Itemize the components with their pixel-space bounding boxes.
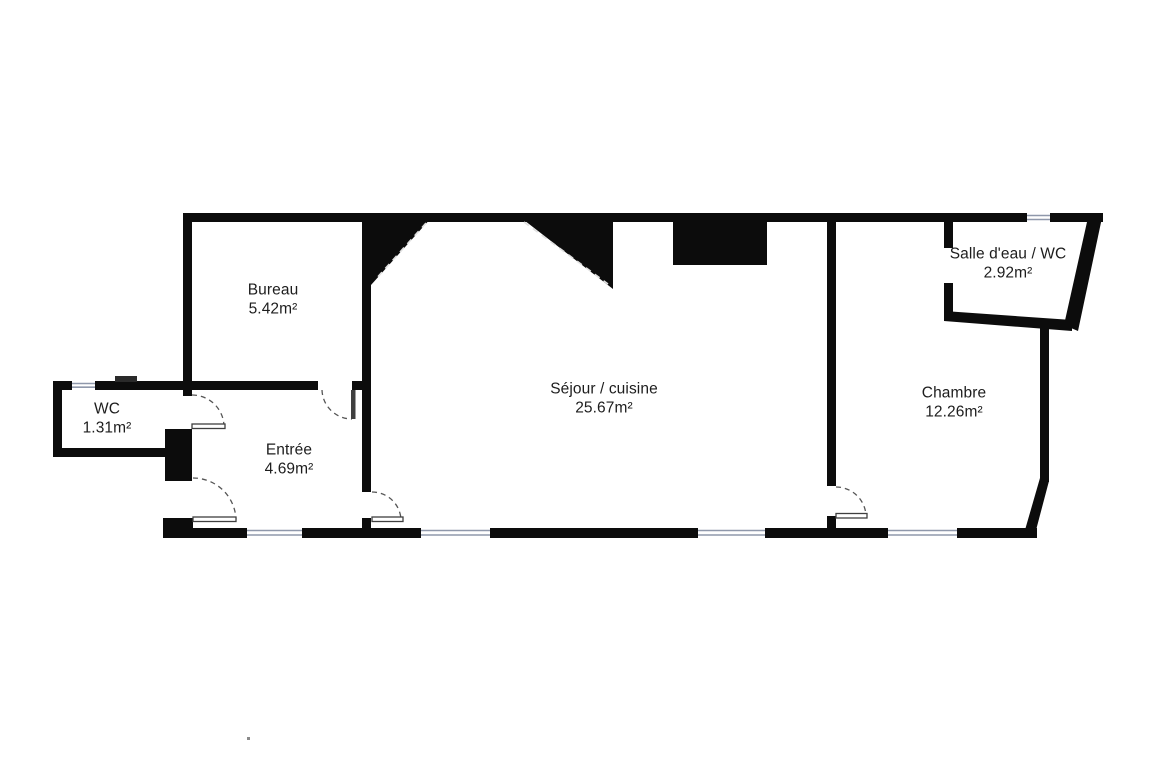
door-arc-chambre — [836, 487, 866, 516]
room-name: WC — [83, 401, 132, 420]
wall-chambre-right — [1040, 322, 1049, 482]
room-label-salle-deau: Salle d'eau / WC 2.92m² — [950, 246, 1067, 283]
wall-wc-bottom — [53, 448, 172, 457]
wall-wc-top-b — [95, 381, 192, 390]
wall-sejour-stub — [362, 518, 371, 538]
room-name: Séjour / cuisine — [550, 381, 658, 400]
wall-bureau-entree-right — [362, 213, 371, 492]
wall-wc-fixture — [115, 376, 137, 382]
room-label-entree: Entrée 4.69m² — [265, 442, 314, 479]
wall-bureau-bottom-a — [183, 381, 318, 390]
room-area: 25.67m² — [550, 399, 658, 418]
door-arc-bureau — [322, 390, 352, 419]
room-name: Chambre — [922, 385, 986, 404]
room-name: Bureau — [248, 282, 299, 301]
door-leaf-chambre — [836, 514, 867, 519]
chimney-block — [673, 217, 767, 265]
room-area: 5.42m² — [248, 300, 299, 319]
wall-bureau-bottom-b — [352, 381, 367, 390]
room-area: 4.69m² — [265, 460, 314, 479]
door-leaf-bureau — [351, 390, 356, 419]
door-leaf-sejour — [372, 517, 403, 522]
wall-bottom-4 — [765, 528, 888, 538]
wall-salle-deau-bottom — [944, 311, 1072, 331]
room-name: Entrée — [265, 442, 314, 461]
door-leaf-wc — [192, 424, 225, 429]
wall-wc-left — [53, 381, 62, 457]
room-area: 12.26m² — [922, 403, 986, 422]
wall-left — [183, 213, 192, 396]
wall-chambre-stub — [827, 516, 836, 538]
wall-bottom-right-chamfer — [1025, 478, 1049, 534]
wall-bottom-2 — [302, 528, 421, 538]
room-area: 1.31m² — [83, 419, 132, 438]
door-arc-wc — [192, 395, 224, 426]
door-arc-entry — [193, 478, 236, 520]
room-area: 2.92m² — [950, 264, 1067, 283]
door-arc-sejour — [372, 492, 401, 520]
wall-left-pillar — [165, 429, 192, 481]
wall-bottom-1 — [163, 528, 247, 538]
room-label-chambre: Chambre 12.26m² — [922, 385, 986, 422]
wall-bottom-3 — [490, 528, 698, 538]
room-label-bureau: Bureau 5.42m² — [248, 282, 299, 319]
room-name: Salle d'eau / WC — [950, 246, 1067, 265]
room-label-wc: WC 1.31m² — [83, 401, 132, 438]
wall-salle-deau-left-a — [944, 222, 953, 248]
wall-right-slant — [1064, 213, 1103, 331]
wall-bottom-5 — [957, 528, 1037, 538]
room-label-sejour: Séjour / cuisine 25.67m² — [550, 381, 658, 418]
scan-artifact-dot — [247, 737, 250, 740]
wall-sejour-chambre — [827, 213, 836, 486]
wall-salle-deau-left-b — [944, 283, 953, 318]
floor-plan-page: Bureau 5.42m² WC 1.31m² Entrée 4.69m² Sé… — [0, 0, 1152, 768]
door-leaf-entry — [193, 517, 236, 522]
